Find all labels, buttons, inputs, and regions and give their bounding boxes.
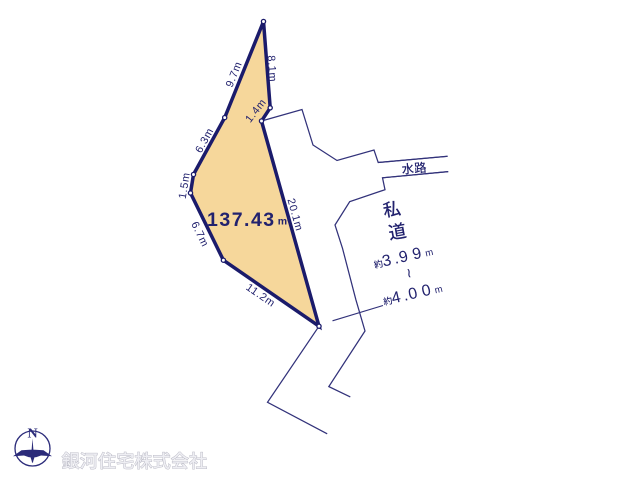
- svg-text:8.1m: 8.1m: [265, 55, 279, 83]
- svg-text:m²: m²: [278, 216, 291, 228]
- svg-text:N: N: [28, 427, 38, 442]
- svg-text:137.43: 137.43: [207, 209, 276, 231]
